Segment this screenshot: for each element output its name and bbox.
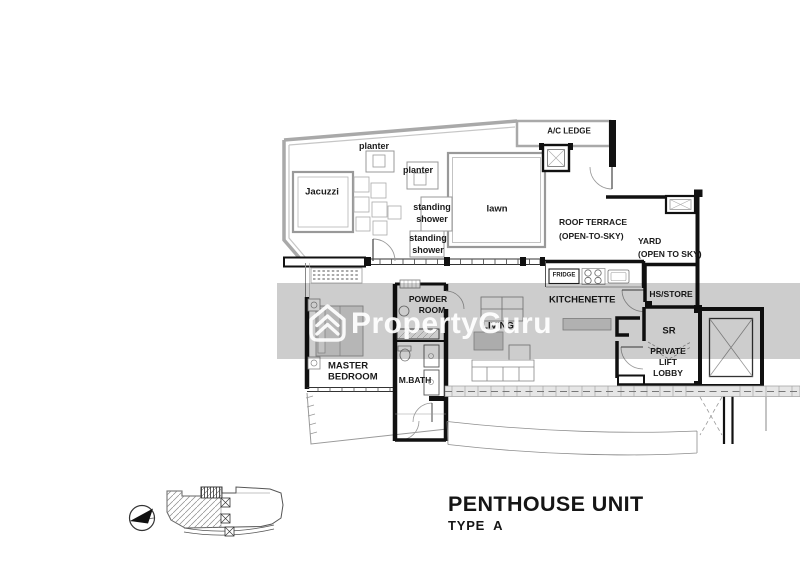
room-label-planter-2: planter [403, 165, 433, 175]
lawn-area [448, 153, 545, 247]
kitchen-sink [608, 270, 629, 283]
fixture-label-fridge: FRIDGE [553, 273, 576, 280]
jacuzzi-fixture [293, 172, 353, 232]
propertyguru-logo-icon [309, 303, 346, 343]
ac-ledge-unit [539, 143, 573, 171]
key-plan-building [167, 487, 283, 536]
room-label-shower1-line2: shower [416, 214, 448, 224]
planter-ledge-bar [284, 258, 365, 284]
room-label-lift-lobby-line2: LIFT [659, 358, 677, 368]
watermark-brand-text: PropertyGuru [351, 305, 552, 343]
room-label-ac-ledge: A/C LEDGE [547, 126, 591, 135]
room-label-shower1-line1: standing [413, 202, 451, 212]
plan-title: PENTHOUSE UNIT [448, 493, 644, 515]
plan-subtitle: TYPE A [448, 518, 644, 533]
title-block: PENTHOUSE UNIT TYPE A [448, 493, 644, 533]
roof-terrace-door [590, 120, 616, 189]
bedroom-balcony [306, 393, 447, 444]
room-label-mbath: M.BATH [399, 376, 431, 386]
key-plan [130, 487, 284, 536]
stepping-stones [354, 177, 401, 235]
room-label-lawn: lawn [486, 205, 507, 216]
room-label-shower2-line1: standing [409, 233, 447, 243]
south-terrace-wall-windows [366, 239, 545, 266]
room-label-roof-terrace-line1: ROOF TERRACE [559, 218, 627, 228]
room-label-yard-line1: YARD [638, 237, 661, 247]
room-label-lift-lobby-line3: LOBBY [653, 369, 683, 379]
floorplan-page: planter planter Jacuzzi standing shower … [0, 0, 800, 565]
room-label-roof-terrace-line2: (OPEN-TO-SKY) [559, 232, 624, 242]
room-label-shower2-line2: shower [412, 245, 444, 255]
north-arrow-icon [130, 506, 155, 531]
room-label-jacuzzi: Jacuzzi [305, 188, 339, 199]
balcony-strip [445, 386, 800, 455]
room-label-planter-1: planter [359, 141, 389, 151]
room-label-yard-line2: (OPEN TO SKY) [638, 250, 702, 260]
room-label-master-line2: BEDROOM [328, 373, 378, 384]
